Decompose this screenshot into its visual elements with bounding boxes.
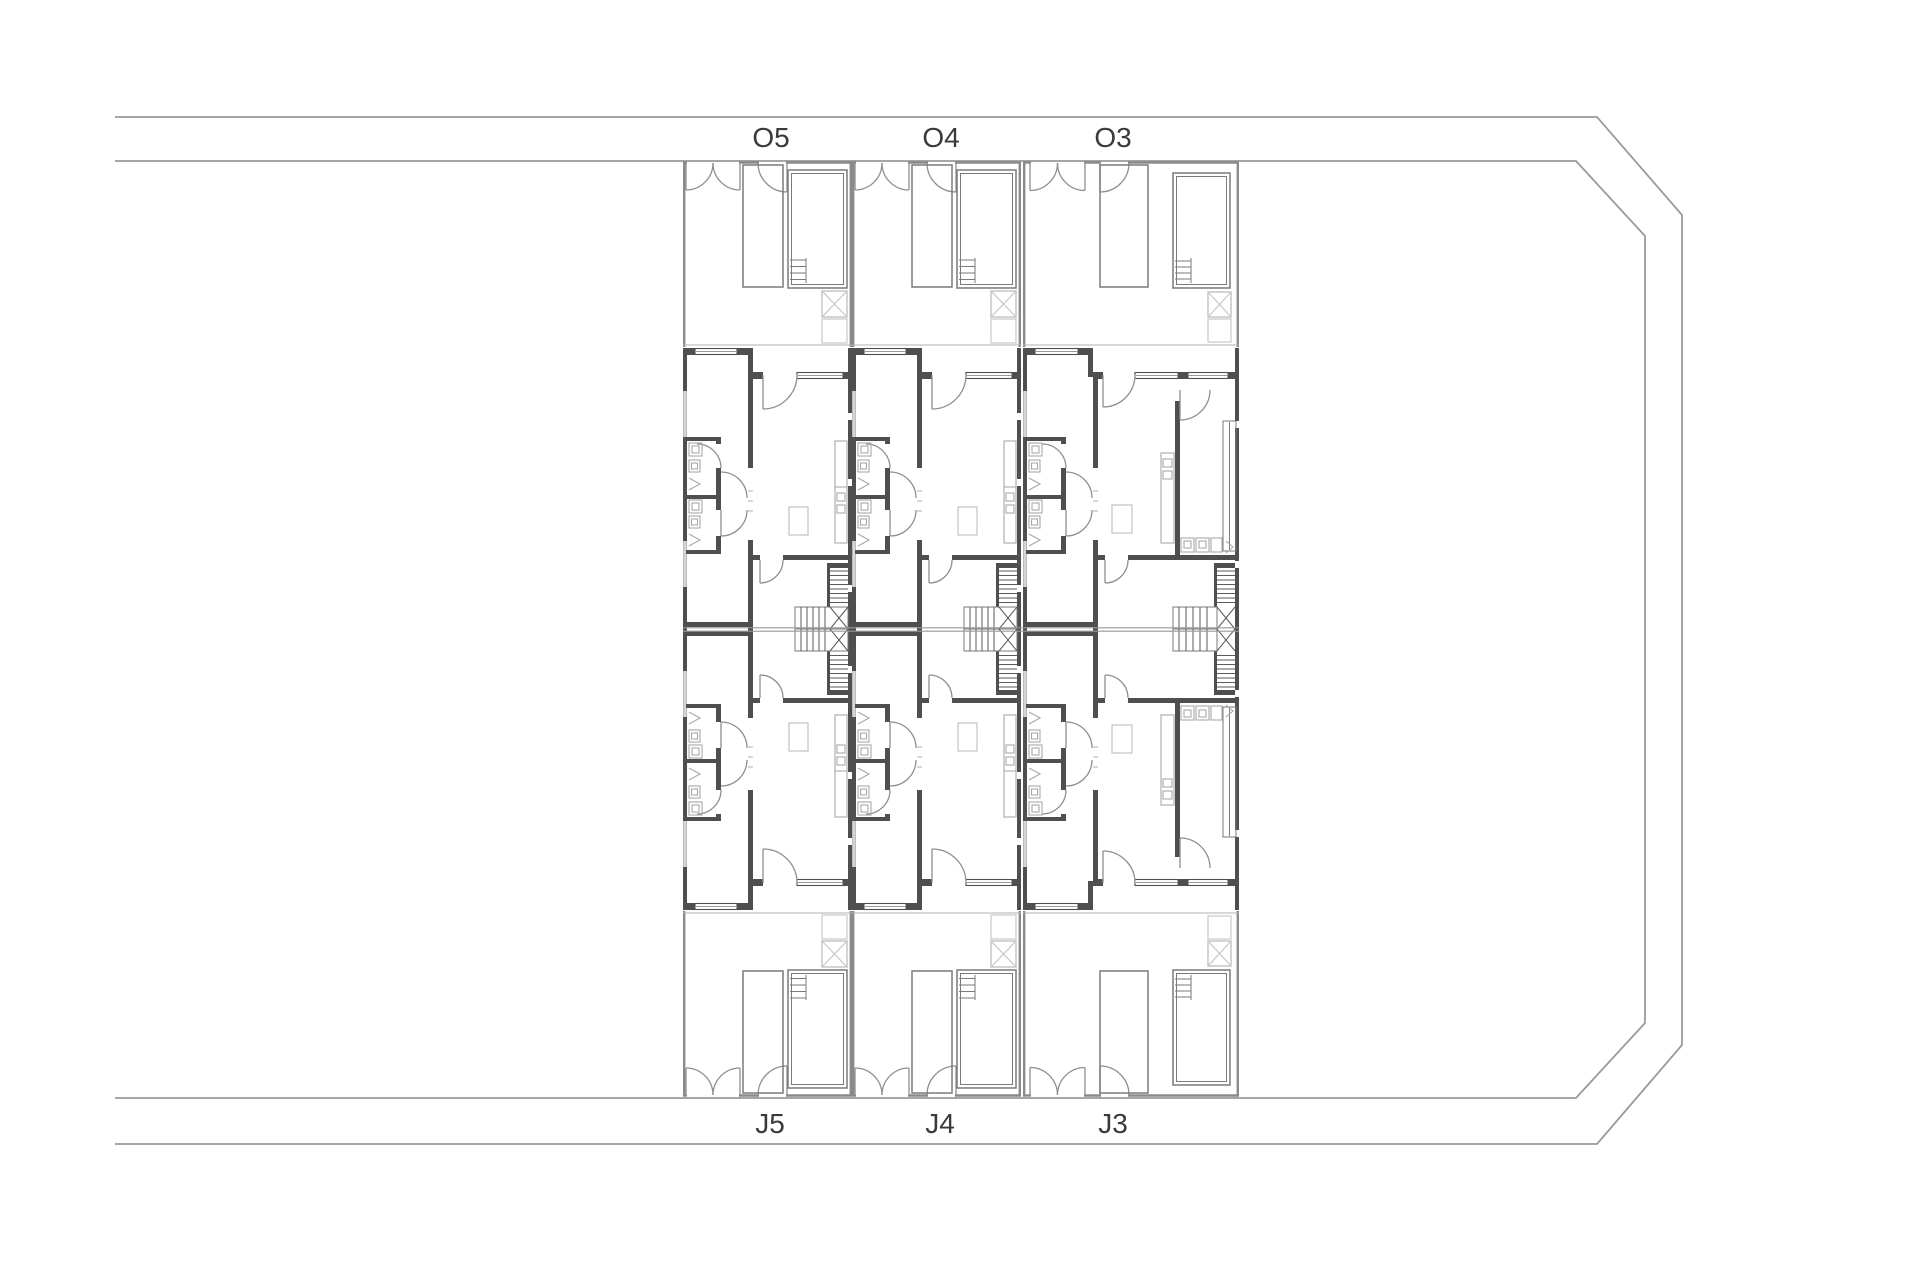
label-j5: J5: [755, 1108, 785, 1139]
party-line: [683, 628, 1239, 631]
unit-j4: [852, 629, 1021, 1096]
floor-plan-page: O5 O4 O3 J5 J4 J3: [0, 0, 1920, 1280]
unit-block: [683, 163, 1239, 1096]
label-o3: O3: [1094, 122, 1131, 153]
unit-o5: [683, 163, 852, 630]
unit-labels: O5 O4 O3 J5 J4 J3: [752, 122, 1131, 1139]
inner-boundary-line: [115, 161, 1645, 1098]
site-boundary: [115, 117, 1682, 1144]
unit-o3: [1023, 163, 1239, 630]
unit-j5: [683, 629, 852, 1096]
label-o4: O4: [922, 122, 959, 153]
label-j4: J4: [925, 1108, 955, 1139]
outer-boundary-line: [115, 117, 1682, 1144]
label-o5: O5: [752, 122, 789, 153]
unit-o4: [852, 163, 1021, 630]
floor-plan-drawing: O5 O4 O3 J5 J4 J3: [0, 0, 1920, 1280]
unit-j3: [1023, 629, 1239, 1096]
label-j3: J3: [1098, 1108, 1128, 1139]
